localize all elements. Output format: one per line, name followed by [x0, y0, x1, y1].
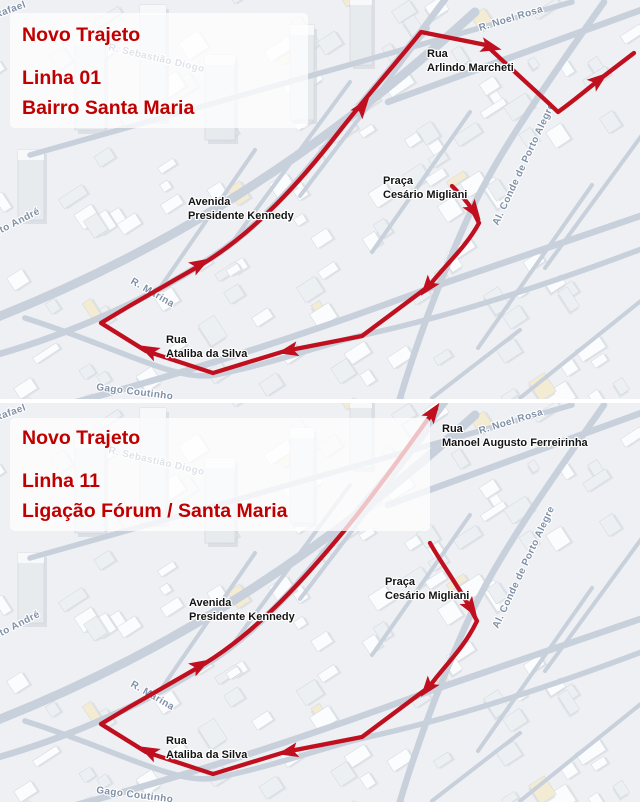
- poi-label-line: Ataliba da Silva: [166, 348, 248, 360]
- title-line3: Ligação Fórum / Santa Maria: [22, 500, 288, 522]
- poi-label-line: Avenida: [188, 196, 231, 208]
- title-line1: Novo Trajeto: [22, 427, 140, 449]
- poi-label-line: Praça: [385, 576, 416, 588]
- route-maps-page: RafaelR. Sebastião DiogoR. Noel RosaAl. …: [0, 0, 640, 802]
- title-line2: Linha 11: [22, 470, 100, 492]
- map-panel-linha-11: RafaelR. Sebastião DiogoR. Noel RosaAl. …: [0, 403, 640, 802]
- poi-label-line: Rua: [427, 48, 449, 60]
- title-line3: Bairro Santa Maria: [22, 97, 194, 119]
- poi-label-line: Ataliba da Silva: [166, 749, 248, 761]
- poi-label-line: Rua: [166, 334, 188, 346]
- poi-label-line: Cesário Migliani: [385, 590, 469, 602]
- poi-label-line: Cesário Migliani: [383, 189, 467, 201]
- map-canvas-linha-11: RafaelR. Sebastião DiogoR. Noel RosaAl. …: [0, 403, 640, 802]
- title-line1: Novo Trajeto: [22, 24, 140, 46]
- poi-label-line: Avenida: [189, 597, 232, 609]
- poi-label-line: Praça: [383, 175, 414, 187]
- map-canvas-linha-01: RafaelR. Sebastião DiogoR. Noel RosaAl. …: [0, 0, 640, 399]
- poi-label-line: Presidente Kennedy: [189, 611, 296, 623]
- poi-label-line: Rua: [166, 735, 188, 747]
- map-panel-linha-01: RafaelR. Sebastião DiogoR. Noel RosaAl. …: [0, 0, 640, 399]
- poi-label-line: Presidente Kennedy: [188, 210, 295, 222]
- poi-label-line: Manoel Augusto Ferreirinha: [442, 437, 589, 449]
- title-line2: Linha 01: [22, 67, 101, 89]
- poi-label-line: Arlindo Marcheti: [427, 62, 514, 74]
- poi-label-line: Rua: [442, 423, 464, 435]
